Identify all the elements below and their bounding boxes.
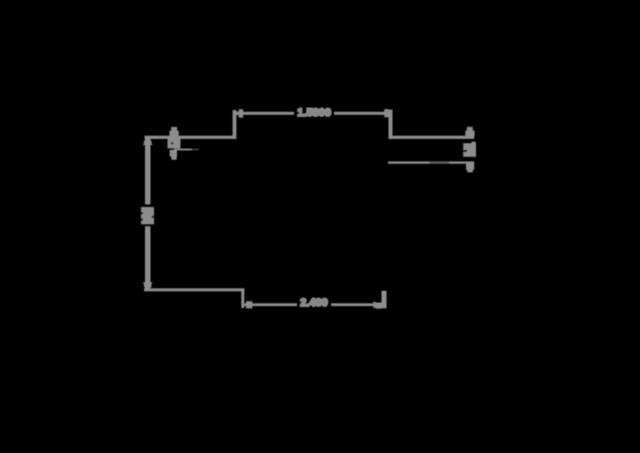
svg-text:2.400: 2.400	[300, 297, 328, 309]
svg-text:1.5800: 1.5800	[297, 107, 331, 119]
